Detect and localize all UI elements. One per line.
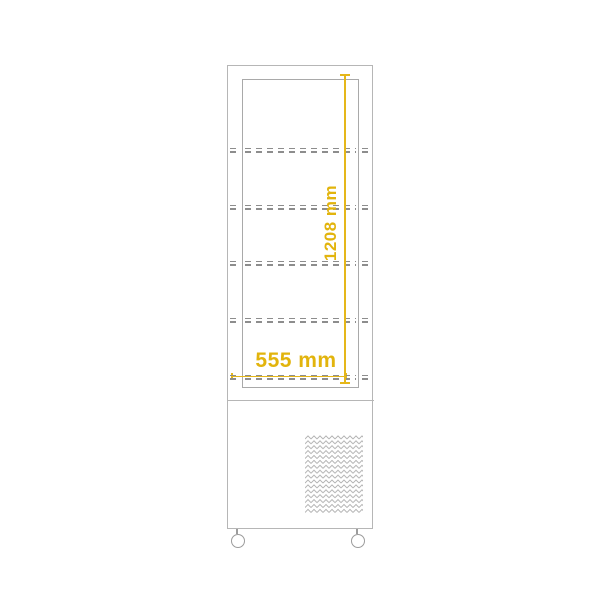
shelf-endmark — [362, 205, 369, 210]
height-dimension-tick-bottom — [340, 382, 350, 384]
shelf-endmark — [230, 375, 237, 380]
caster-wheel-icon — [231, 534, 245, 548]
caster-wheel-icon — [351, 534, 365, 548]
shelf-endmark — [230, 261, 237, 266]
shelf-endmark — [362, 261, 369, 266]
shelf-endmark — [362, 375, 369, 380]
height-dimension-line — [344, 74, 346, 383]
caster-wheel-left — [230, 529, 244, 549]
shelf-line — [245, 375, 356, 380]
shelf-line — [245, 318, 356, 323]
shelf-endmark — [230, 148, 237, 153]
shelf-line — [245, 261, 356, 266]
ventilation-grille — [305, 435, 363, 513]
shelf-line — [245, 148, 356, 153]
dimension-diagram: 1208 mm 555 mm — [0, 0, 600, 600]
shelf-endmark — [362, 318, 369, 323]
height-dimension-label: 1208 mm — [321, 185, 341, 261]
shelf-endmark — [230, 205, 237, 210]
base-divider-line — [227, 400, 374, 401]
door-outline — [242, 79, 359, 388]
shelf-endmark — [362, 148, 369, 153]
height-dimension-tick-top — [340, 74, 350, 76]
shelf-endmark — [230, 318, 237, 323]
width-dimension-label: 555 mm — [255, 349, 336, 373]
caster-wheel-right — [350, 529, 364, 549]
